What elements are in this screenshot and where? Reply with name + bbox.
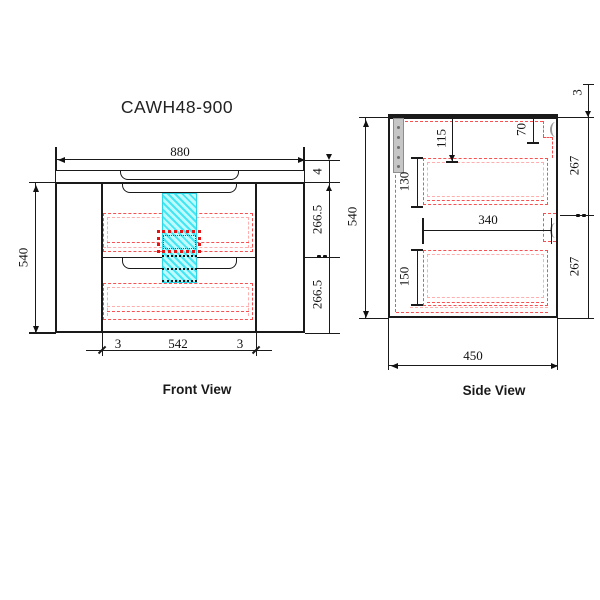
hidden-line	[543, 121, 544, 137]
dimension-line	[533, 117, 535, 143]
end-bar	[551, 218, 553, 244]
hidden-drawer-box-light	[543, 254, 544, 298]
dim-label-266-5-upper: 266.5	[310, 195, 325, 245]
hidden-runner-bracket	[543, 241, 556, 242]
arrowhead-up	[363, 117, 369, 127]
hidden-bottom-line	[396, 312, 548, 313]
extension-line	[558, 318, 594, 319]
gap-dim-mark	[576, 214, 580, 217]
hidden-drawer-box-light	[427, 162, 544, 163]
hidden-drawer-box-light	[427, 254, 428, 298]
end-bar	[411, 206, 423, 208]
hidden-drawer-box-light	[427, 196, 544, 197]
bracket-screw-hole	[397, 126, 400, 129]
side-view-label: Side View	[444, 383, 544, 398]
end-bar	[411, 249, 423, 251]
bracket-screw-hole	[397, 136, 400, 139]
hidden-runner-bracket	[543, 213, 556, 214]
dimension-line	[423, 230, 552, 232]
dim-label-266-5-lower: 266.5	[310, 270, 325, 320]
dimension-line	[388, 365, 558, 367]
side-view-group: 115 130 70 340 150 540	[0, 0, 255, 600]
dim-label-340: 340	[458, 212, 518, 227]
dim-label-70: 70	[514, 110, 529, 150]
dim-label-130: 130	[397, 159, 412, 205]
dim-label-267-upper: 267	[567, 143, 582, 189]
hidden-runner-line	[427, 200, 544, 201]
hidden-drawer-box	[423, 250, 548, 251]
hidden-drawer-box	[423, 204, 548, 205]
gap-dim-mark	[317, 255, 321, 258]
drawing-canvas: CAWH48-900 880	[0, 0, 600, 600]
hidden-drawer-box	[423, 158, 424, 205]
extension-line	[256, 333, 257, 356]
arrowhead-down	[449, 155, 455, 164]
end-tick	[583, 84, 594, 86]
bracket-screw-hole	[397, 146, 400, 149]
hidden-drawer-box	[547, 158, 548, 205]
hidden-line	[552, 137, 553, 158]
dim-label-267-lower: 267	[567, 244, 582, 290]
gap-dim-mark	[582, 214, 586, 217]
hidden-drawer-box-light	[427, 254, 544, 255]
arrowhead-right	[551, 363, 561, 369]
hidden-drawer-box	[423, 305, 548, 306]
extension-line	[305, 333, 340, 334]
hidden-drawer-box-light	[427, 297, 544, 298]
handle-profile-arc	[550, 122, 561, 137]
dimension-line	[417, 158, 419, 207]
dim-label-115: 115	[434, 116, 449, 162]
hidden-drawer-box-light	[427, 162, 428, 197]
arrowhead-left	[388, 363, 398, 369]
dim-label-540: 540	[345, 194, 360, 240]
hidden-runner-line	[427, 302, 544, 303]
hidden-drawer-box-light	[543, 162, 544, 197]
hidden-drawer-box	[423, 250, 424, 306]
hidden-runner-line-light	[410, 307, 548, 308]
end-bar	[411, 157, 423, 159]
arrowhead-up	[326, 182, 332, 191]
end-bar	[422, 218, 424, 244]
dim-label-3: 3	[570, 73, 585, 113]
arrowhead-down	[326, 154, 332, 163]
dimension-line	[365, 117, 367, 318]
dim-label-450: 450	[443, 348, 503, 363]
arrowhead-down	[363, 311, 369, 321]
dim-label-4: 4	[310, 152, 325, 192]
end-bar	[527, 142, 539, 144]
hidden-drawer-box	[547, 250, 548, 306]
dim-label-150: 150	[397, 254, 412, 300]
arrowhead-down	[585, 111, 591, 120]
hidden-runner-bracket	[543, 213, 544, 242]
end-bar	[411, 304, 423, 306]
dimension-line	[417, 250, 419, 305]
gap-dim-mark	[323, 255, 327, 258]
